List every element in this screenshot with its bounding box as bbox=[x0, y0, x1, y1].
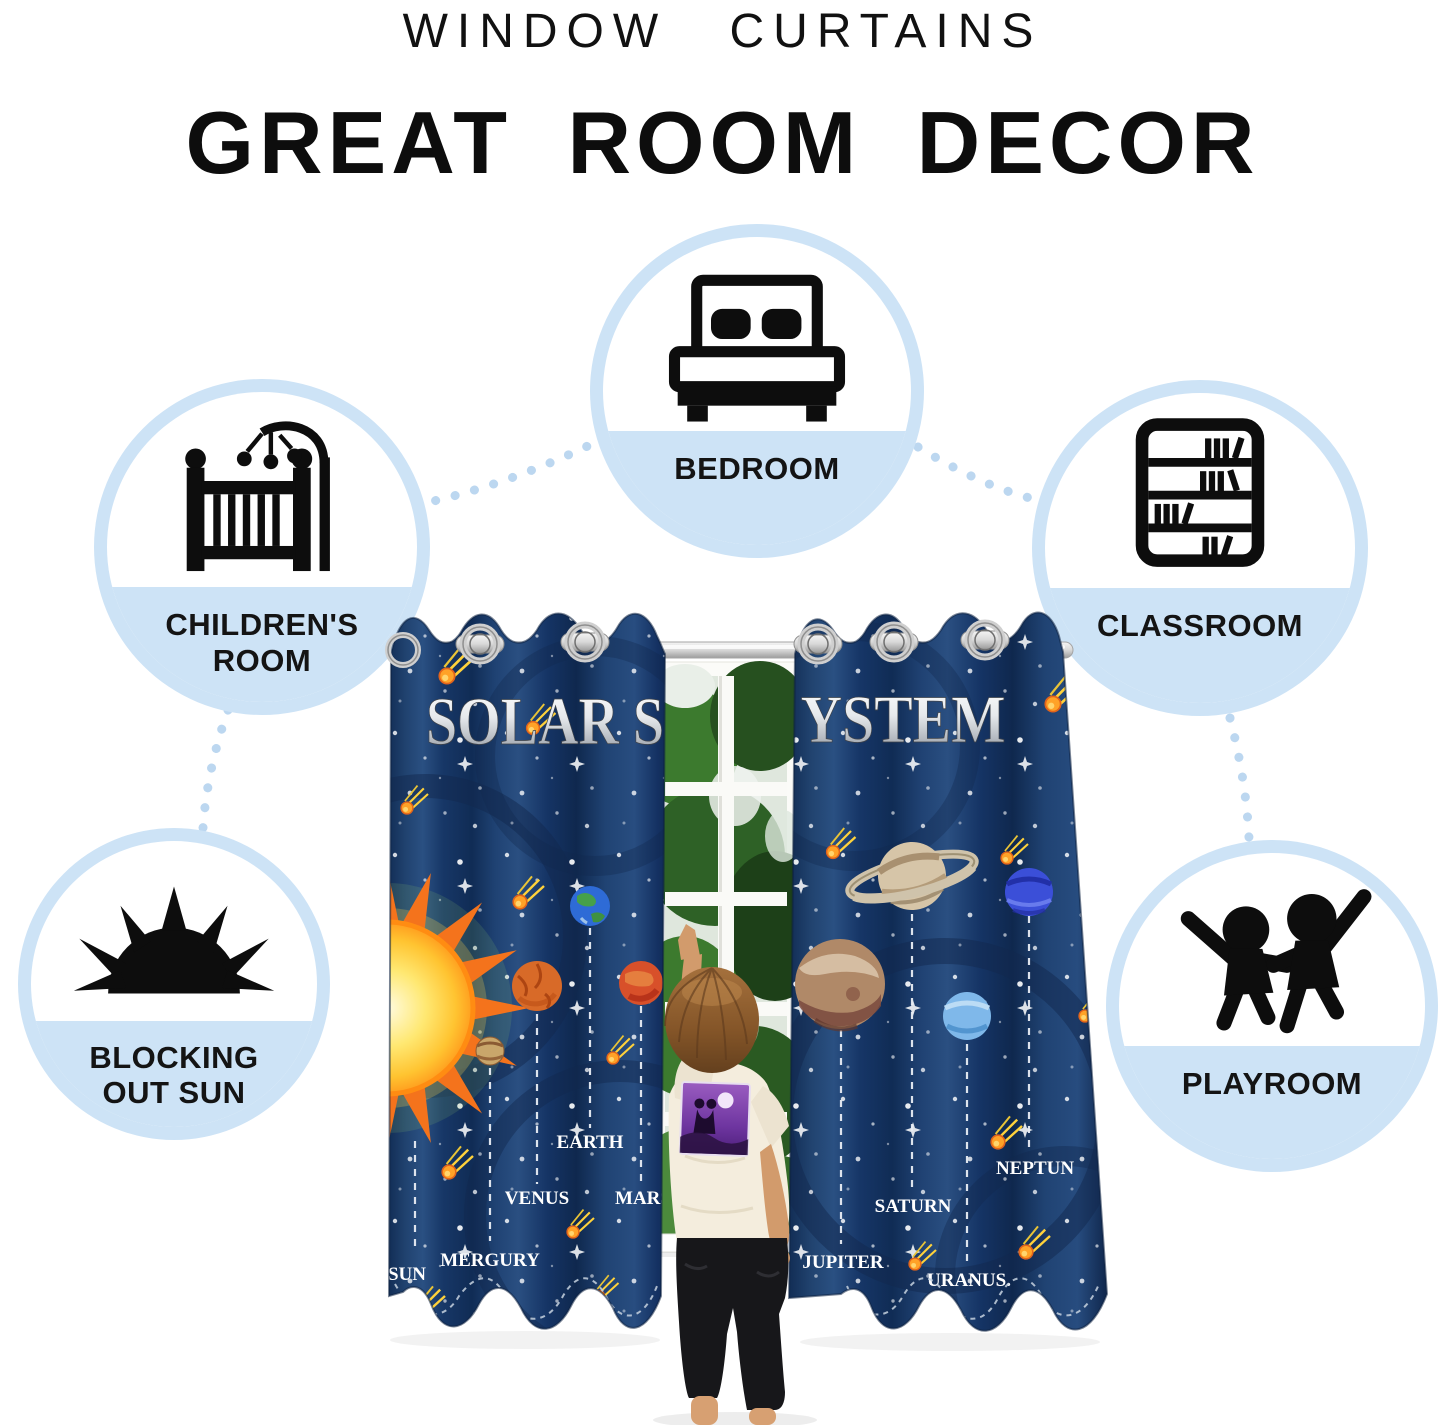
feature-childrens-room: CHILDREN'SROOM bbox=[94, 379, 430, 715]
grommet bbox=[794, 623, 1009, 661]
planet-uranus bbox=[943, 992, 991, 1040]
child-shorts bbox=[676, 1238, 788, 1410]
connector-dots bbox=[1230, 718, 1249, 838]
planet-venus bbox=[512, 961, 562, 1011]
feature-bedroom: BEDROOM bbox=[590, 224, 924, 558]
curtain-headline-left: SOLAR S bbox=[426, 683, 664, 759]
planet-label-neptune: NEPTUN bbox=[996, 1158, 1074, 1179]
connector-dots bbox=[416, 442, 596, 505]
crib-icon bbox=[165, 419, 360, 581]
feature-playroom: PLAYROOM bbox=[1106, 840, 1438, 1172]
curtain-headline-right: YSTEM bbox=[801, 681, 1006, 757]
product-infographic: WINDOW CURTAINS GREAT ROOM DECOR BEDROOM bbox=[0, 0, 1445, 1425]
child-leg bbox=[749, 1408, 776, 1425]
page-title: WINDOW CURTAINS bbox=[0, 4, 1445, 59]
bookshelf-icon bbox=[1129, 417, 1270, 568]
planet-earth bbox=[570, 886, 610, 926]
child-leg bbox=[691, 1396, 718, 1425]
planet-label-jupiter: JUPITER bbox=[802, 1252, 884, 1273]
sun-icon bbox=[71, 881, 277, 996]
planet-label-mercury: MERGURY bbox=[440, 1250, 540, 1271]
shirt-print bbox=[680, 1082, 750, 1156]
planet-label-saturn: SATURN bbox=[875, 1196, 952, 1217]
kids-icon bbox=[1169, 883, 1375, 1037]
connector-dots bbox=[918, 447, 1038, 500]
planet-label-earth: EARTH bbox=[557, 1132, 624, 1153]
planet-label-sun: SUN bbox=[388, 1264, 426, 1285]
planet-mercury bbox=[476, 1037, 504, 1065]
planet-jupiter bbox=[795, 939, 885, 1029]
feature-label: CHILDREN'SROOM bbox=[94, 607, 430, 678]
planet-mars bbox=[619, 961, 663, 1005]
feature-label: BEDROOM bbox=[590, 451, 924, 486]
feature-label: PLAYROOM bbox=[1106, 1066, 1438, 1101]
planet-label-venus: VENUS bbox=[505, 1188, 569, 1209]
connector-dots bbox=[203, 710, 228, 828]
product-photo: SOLAR S SUN MERGURY VENUS EARTH MARS bbox=[385, 596, 1110, 1425]
page-subtitle: GREAT ROOM DECOR bbox=[0, 92, 1445, 194]
curtain-panel-right: YSTEM JUPITER SATURN URANUS. NEPTUN bbox=[740, 604, 1110, 1396]
feature-blocking-sun: BLOCKINGOUT SUN bbox=[18, 828, 330, 1140]
bed-icon bbox=[662, 274, 852, 426]
feature-label: BLOCKINGOUT SUN bbox=[18, 1040, 330, 1111]
planet-neptune bbox=[1005, 868, 1053, 916]
